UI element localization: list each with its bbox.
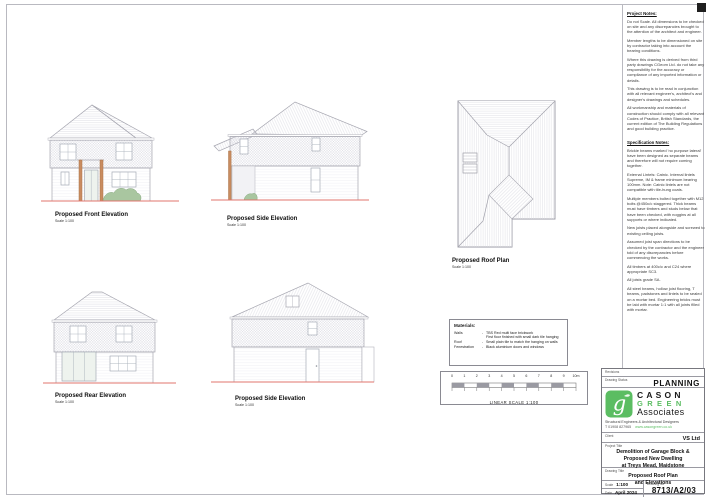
side-elevation-1-drawing [210,96,370,223]
logo-word-associates: Associates [637,408,686,418]
drawing-sheet: Proposed Front Elevation Scale 1:100 [0,0,709,500]
front-elevation-label: Proposed Front Elevation Scale 1:100 [55,212,128,223]
revisions-row: Revisions [602,369,704,377]
client-label: Client [605,434,613,438]
date-cell: Date April 2024 [602,489,643,497]
materials-item: Walls [454,331,479,340]
phone-number: T 01908 827965 [605,425,631,429]
spec-note: Multiple members bolted together with M1… [627,196,705,222]
materials-row-walls: Walls - TBS Red multi face brickwork Fir… [454,331,563,340]
roof-plan-title: Proposed Roof Plan [452,258,509,265]
side-elevation-1-title: Proposed Side Elevation [227,216,297,223]
client-name: VS Ltd [683,436,700,442]
notes-column-divider [622,4,623,368]
logo-wordmark: CASON GREEN Associates [637,390,686,418]
spec-note: External Lintels: Catnic. Internal linte… [627,172,705,193]
scale-value: 1:100 [616,482,628,487]
drawing-status: PLANNING [653,379,700,388]
status-row: Drawing Status PLANNING [602,377,704,388]
title-block: Revisions Drawing Status PLANNING g CASO… [601,368,705,494]
side-elevation-2-label: Proposed Side Elevation Scale 1:100 [235,396,305,407]
materials-item: Fenestration [454,345,479,350]
date-label: Date [605,491,612,495]
drawing-number-cell: Drawing No 8713/A2/03 [644,481,704,497]
materials-desc: Black aluminium doors and windows [486,345,563,350]
linear-scale-numbers: 0 1 2 3 4 5 6 7 8 9 10m [448,374,580,380]
specification-notes-heading: Specification Notes: [627,140,705,146]
spec-note: Assumed joist span directions to be chec… [627,239,705,260]
spec-note: New joists placed alongside and screwed … [627,225,705,235]
roof-plan-drawing [443,93,578,260]
project-note: Do not Scale. All dimensions to be check… [627,19,705,35]
spec-note: Brickie beams marked 'no purpose lateral… [627,148,705,169]
rear-elevation-scale: Scale 1:100 [55,400,126,404]
revisions-label: Revisions [605,370,619,374]
project-note: Member lengths to be dimensioned on site… [627,38,705,54]
spec-note: All timbers at 400c/c and C24 where appr… [627,264,705,274]
side-elevation-1-scale: Scale 1:100 [227,223,297,227]
scale-label: Scale [605,483,613,487]
materials-box: Materials: Walls - TBS Red multi face br… [449,319,568,366]
project-title-row: Project Title Demolition of Garage Block… [602,443,704,468]
drawing-title-row: Drawing Title Proposed Roof Plan and Ele… [602,468,704,481]
front-elevation-scale: Scale 1:100 [55,219,128,223]
project-note: This drawing is to be read in conjunctio… [627,86,705,102]
roof-plan-label: Proposed Roof Plan Scale 1:100 [452,258,509,269]
side-elevation-1-svg [210,96,370,218]
side-elevation-2-drawing [210,281,375,403]
front-elevation-svg [40,98,180,216]
side-elevation-2-svg [210,281,375,398]
rear-elevation-drawing [42,286,177,403]
rear-elevation-svg [42,286,177,398]
project-note: All workmanship and materials of constru… [627,105,705,131]
rear-elevation-label: Proposed Rear Elevation Scale 1:100 [55,393,126,404]
linear-scale-box: 0 1 2 3 4 5 6 7 8 9 10m [440,371,588,405]
linear-scale-caption: LINEAR SCALE 1:100 [448,400,580,405]
status-label: Drawing Status [605,378,627,382]
drawing-title-label: Drawing Title [605,469,624,473]
materials-row-fenestration: Fenestration - Black aluminium doors and… [454,345,563,350]
logo-row: g CASON GREEN Associates Structural Engi… [602,388,704,433]
project-note: Where this drawing is derived from third… [627,57,705,83]
scale-date-number-row: Scale 1:100 Date April 2024 Drawing No 8… [602,481,704,497]
rear-elevation-title: Proposed Rear Elevation [55,393,126,400]
materials-desc: TBS Red multi face brickwork First floor… [486,331,563,340]
spec-note: All steel beams, hollow joist flooring, … [627,286,705,312]
front-elevation-title: Proposed Front Elevation [55,212,128,219]
logo-contact: T 01908 827965 www.casongreen.co.uk [605,425,701,429]
cason-green-logo-icon: g [605,390,633,418]
linear-scale-ruler [448,382,580,393]
materials-heading: Materials: [454,323,563,328]
drawing-number: 8713/A2/03 [644,486,704,495]
project-notes-heading: Project Notes: [627,11,705,17]
date-value: April 2024 [615,490,637,495]
website: www.casongreen.co.uk [635,425,672,429]
side-elevation-1-label: Proposed Side Elevation Scale 1:100 [227,216,297,227]
roof-plan-scale: Scale 1:100 [452,265,509,269]
roof-plan-svg [443,93,578,255]
side-elevation-2-title: Proposed Side Elevation [235,396,305,403]
side-elevation-2-scale: Scale 1:100 [235,403,305,407]
svg-text:g: g [613,392,626,416]
project-title-label: Project Title [605,444,622,448]
notes-column: Project Notes: Do not Scale. All dimensi… [627,11,705,316]
sheet-border [6,4,704,495]
client-row: Client VS Ltd [602,433,704,443]
project-title: Demolition of Garage Block & Proposed Ne… [605,449,701,469]
scale-cell: Scale 1:100 [602,481,643,489]
front-elevation-drawing [40,98,180,221]
logo-tagline: Structural Engineers & Architectural Des… [605,420,701,424]
spec-note: All joists grade SA. [627,277,705,282]
